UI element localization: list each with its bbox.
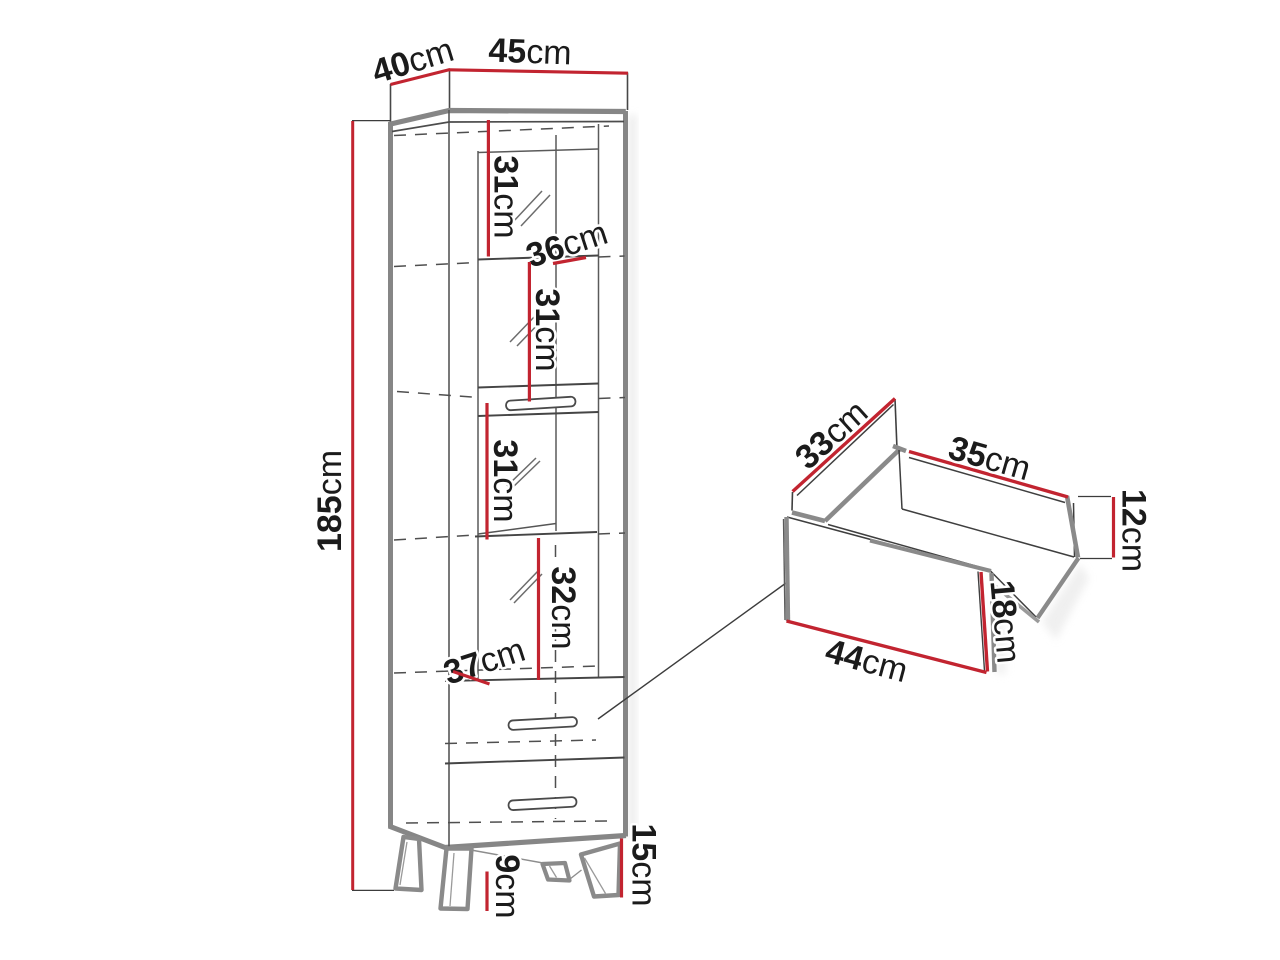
svg-text:32cm: 32cm: [544, 566, 582, 649]
svg-text:31cm: 31cm: [487, 155, 525, 238]
svg-text:31cm: 31cm: [486, 439, 524, 522]
svg-text:15cm: 15cm: [625, 823, 663, 906]
svg-text:9cm: 9cm: [488, 854, 526, 918]
svg-text:45cm: 45cm: [488, 32, 572, 73]
svg-text:31cm: 31cm: [528, 288, 566, 371]
svg-text:185cm: 185cm: [311, 450, 349, 552]
svg-text:12cm: 12cm: [1115, 489, 1153, 572]
svg-text:18cm: 18cm: [982, 579, 1027, 665]
